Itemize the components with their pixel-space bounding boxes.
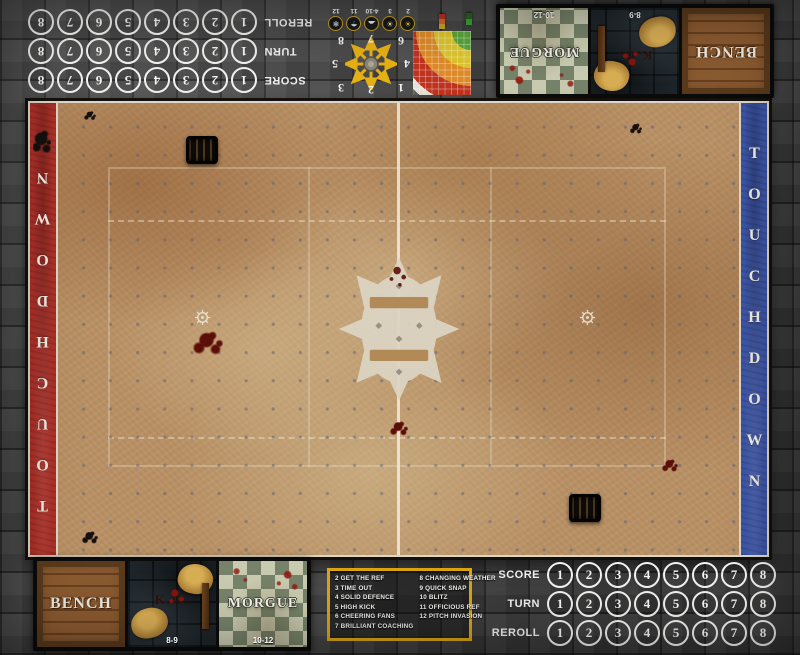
range-marker-icon	[439, 14, 445, 29]
pitch: TOUCHDOWN	[28, 101, 769, 557]
track-circle[interactable]: 6	[692, 591, 718, 617]
score-track-label: SCORE	[482, 569, 547, 581]
bench-box[interactable]: BENCH	[37, 561, 125, 647]
track-circle[interactable]: 4	[634, 620, 660, 646]
blood-splatter	[84, 111, 96, 121]
track-circle[interactable]: 2	[576, 591, 602, 617]
track-circle[interactable]: 6	[692, 562, 718, 588]
track-circle[interactable]: 1	[547, 591, 573, 617]
track-circle[interactable]: 5	[115, 9, 141, 35]
opponent-track-panel: SCORE 1 2 3 4 5 6 7 8 TURN 1 2 3 4 5 6 7	[26, 9, 322, 93]
track-circle[interactable]: 5	[115, 67, 141, 93]
track-circle[interactable]: 6	[692, 620, 718, 646]
gear-rune-icon	[194, 309, 211, 326]
weather-table: ☀ 2 ☀ 3 ☁ 4-10 ☂ 11 ❄ 12	[328, 8, 416, 32]
morgue-label: MORGUE	[228, 596, 299, 612]
opponent-dugout-tray: BENCH K.O. 8-9 MORGUE 10-12	[496, 4, 774, 98]
kickoff-entry: 2 GET THE REF	[335, 575, 414, 582]
scatter-number: 3	[335, 80, 347, 95]
wooden-post-icon	[598, 26, 605, 72]
scatter-number: 8	[335, 33, 347, 48]
weather-pouring-rain: ☂ 11	[346, 8, 362, 32]
score-track-circles: 1 2 3 4 5 6 7 8	[28, 67, 257, 93]
track-circle[interactable]: 7	[57, 38, 83, 64]
weather-very-sunny: ☀ 3	[382, 8, 398, 32]
bench-label: BENCH	[695, 42, 757, 60]
blood-splatter	[662, 459, 678, 473]
turn-track: TURN 1 2 3 4 5 6 7 8	[26, 38, 322, 64]
track-circle[interactable]: 4	[144, 38, 170, 64]
score-track: SCORE 1 2 3 4 5 6 7 8	[26, 67, 322, 93]
player-track-panel: SCORE 1 2 3 4 5 6 7 8 TURN 1 2 3 4 5 6 7	[482, 562, 778, 646]
reroll-track-label: REROLL	[482, 627, 547, 639]
morgue-box[interactable]: MORGUE 10-12	[500, 8, 588, 94]
turn-track-circles: 1 2 3 4 5 6 7 8	[547, 591, 776, 617]
track-circle[interactable]: 4	[144, 9, 170, 35]
track-circle[interactable]: 7	[57, 67, 83, 93]
turn-track-label: TURN	[257, 45, 322, 57]
kickoff-entry: 5 HIGH KICK	[335, 604, 414, 611]
track-circle[interactable]: 2	[202, 67, 228, 93]
blood-splatter	[630, 123, 642, 135]
track-circle[interactable]: 5	[663, 562, 689, 588]
player-dugout-tray: BENCH K.O. 8-9 MORGUE 10-12	[33, 557, 311, 651]
gear-rune-icon	[579, 309, 596, 326]
track-circle[interactable]: 4	[634, 591, 660, 617]
weather-roll-label: 4-10	[366, 8, 379, 15]
cloud-icon: ☁	[368, 20, 376, 28]
scatter-number: 6	[395, 33, 407, 48]
snow-icon: ❄	[333, 20, 340, 28]
track-circle[interactable]: 6	[86, 9, 112, 35]
wooden-post-icon	[202, 583, 209, 629]
track-circle[interactable]: 8	[750, 591, 776, 617]
score-track: SCORE 1 2 3 4 5 6 7 8	[482, 562, 778, 588]
weather-nice: ☁ 4-10	[364, 8, 380, 32]
sun-icon: ☀	[404, 20, 411, 28]
track-circle[interactable]: 1	[231, 38, 257, 64]
trapdoor-icon	[569, 494, 601, 522]
trapdoor-icon	[186, 136, 218, 164]
morgue-box[interactable]: MORGUE 10-12	[219, 561, 307, 647]
score-track-circles: 1 2 3 4 5 6 7 8	[547, 562, 776, 588]
weather-blizzard: ❄ 12	[328, 8, 344, 32]
weather-roll-label: 11	[351, 8, 358, 15]
scatter-number: 4	[401, 56, 413, 71]
ko-label: K.O.	[155, 592, 190, 608]
ko-range-label: 8-9	[591, 10, 679, 19]
morgue-label: MORGUE	[509, 43, 580, 59]
track-circle[interactable]: 2	[576, 620, 602, 646]
touchdown-label-right: TOUCHDOWN	[745, 145, 763, 514]
track-circle[interactable]: 7	[57, 9, 83, 35]
range-marker-icon	[466, 13, 472, 25]
track-circle[interactable]: 4	[144, 67, 170, 93]
weather-roll-label: 3	[388, 8, 392, 15]
track-circle[interactable]: 1	[231, 67, 257, 93]
reroll-track-label: REROLL	[257, 16, 322, 28]
weather-sweltering: ☀ 2	[400, 8, 416, 32]
reference-templates: 1 2 3 4 5 6 7 8 ☀ 2 ☀ 3 ☁ 4-10 ☂ 11	[327, 5, 473, 97]
kickoff-entry: 3 TIME OUT	[335, 585, 414, 592]
morgue-range-label: 10-12	[219, 636, 307, 645]
track-circle[interactable]: 5	[663, 620, 689, 646]
track-circle[interactable]: 1	[231, 9, 257, 35]
straw-pile-icon	[637, 14, 679, 50]
track-circle[interactable]: 8	[750, 562, 776, 588]
pass-range-ruler	[413, 31, 471, 95]
wide-zone-line	[108, 220, 666, 222]
scatter-number: 5	[329, 56, 341, 71]
track-circle[interactable]: 8	[28, 9, 54, 35]
scatter-number: 7	[365, 31, 377, 46]
scatter-number: 2	[365, 82, 377, 97]
track-circle[interactable]: 6	[86, 67, 112, 93]
weather-roll-label: 12	[332, 8, 339, 15]
reroll-track-circles: 1 2 3 4 5 6 7 8	[28, 9, 257, 35]
score-track-label: SCORE	[257, 74, 322, 86]
turn-track: TURN 1 2 3 4 5 6 7 8	[482, 591, 778, 617]
blood-splatter	[82, 531, 98, 545]
track-circle[interactable]: 3	[605, 591, 631, 617]
track-circle[interactable]: 3	[173, 38, 199, 64]
reroll-track-circles: 1 2 3 4 5 6 7 8	[547, 620, 776, 646]
turn-track-label: TURN	[482, 598, 547, 610]
scatter-template: 1 2 3 4 5 6 7 8	[329, 33, 413, 95]
track-circle[interactable]: 3	[605, 620, 631, 646]
track-circle[interactable]: 3	[605, 562, 631, 588]
touchdown-label-left: TOUCHDOWN	[34, 145, 52, 514]
pitch-marking	[308, 167, 310, 467]
track-circle[interactable]: 1	[547, 562, 573, 588]
endzone-right: TOUCHDOWN	[739, 103, 767, 555]
track-circle[interactable]: 7	[721, 591, 747, 617]
track-circle[interactable]: 5	[663, 591, 689, 617]
rain-icon: ☂	[350, 20, 357, 28]
kickoff-entry: 6 CHEERING FANS	[335, 613, 414, 620]
knocked-out-box[interactable]: K.O. 8-9	[591, 8, 679, 94]
track-circle[interactable]: 3	[173, 9, 199, 35]
track-circle[interactable]: 3	[173, 67, 199, 93]
wide-zone-line	[108, 437, 666, 439]
playing-field[interactable]	[58, 103, 739, 555]
kickoff-table: 2 GET THE REF 3 TIME OUT 4 SOLID DEFENCE…	[327, 568, 472, 641]
kickoff-entry: 7 BRILLIANT COACHING	[335, 623, 414, 630]
track-circle[interactable]: 2	[202, 38, 228, 64]
track-circle[interactable]: 8	[28, 38, 54, 64]
kickoff-entry: 4 SOLID DEFENCE	[335, 594, 414, 601]
track-circle[interactable]: 8	[28, 67, 54, 93]
track-circle[interactable]: 2	[576, 562, 602, 588]
track-circle[interactable]: 4	[634, 562, 660, 588]
weather-roll-label: 2	[406, 8, 410, 15]
spiked-ball-logo	[333, 253, 465, 405]
ko-label: K.O.	[618, 47, 653, 63]
bench-label: BENCH	[50, 595, 112, 613]
blood-splatter	[193, 331, 223, 357]
reroll-track: REROLL 1 2 3 4 5 6 7 8	[26, 9, 322, 35]
track-circle[interactable]: 8	[750, 620, 776, 646]
track-circle[interactable]: 2	[202, 9, 228, 35]
track-circle[interactable]: 1	[547, 620, 573, 646]
track-circle[interactable]: 7	[721, 562, 747, 588]
reroll-track: REROLL 1 2 3 4 5 6 7 8	[482, 620, 778, 646]
track-circle[interactable]: 6	[86, 38, 112, 64]
pitch-marking	[490, 167, 492, 467]
endzone-left: TOUCHDOWN	[30, 103, 58, 555]
track-circle[interactable]: 5	[115, 38, 141, 64]
ko-range-label: 8-9	[128, 636, 216, 645]
bench-box[interactable]: BENCH	[682, 8, 770, 94]
scatter-number: 1	[395, 80, 407, 95]
track-circle[interactable]: 7	[721, 620, 747, 646]
morgue-range-label: 10-12	[500, 10, 588, 19]
turn-track-circles: 1 2 3 4 5 6 7 8	[28, 38, 257, 64]
blood-bowl-game-mat: SCORE 1 2 3 4 5 6 7 8 TURN 1 2 3 4 5 6 7	[0, 0, 800, 655]
kickoff-table-left-column: 2 GET THE REF 3 TIME OUT 4 SOLID DEFENCE…	[335, 575, 414, 634]
very-sunny-icon: ☀	[386, 20, 393, 28]
knocked-out-box[interactable]: K.O. 8-9	[128, 561, 216, 647]
